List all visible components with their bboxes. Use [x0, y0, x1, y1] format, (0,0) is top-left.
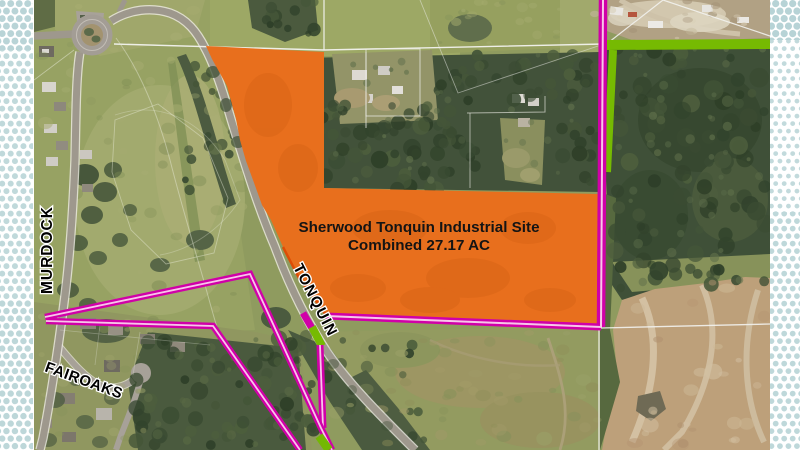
svg-text:Sherwood Tonquin Industrial Si: Sherwood Tonquin Industrial Site: [298, 219, 539, 236]
svg-text:Combined 27.17 AC: Combined 27.17 AC: [348, 237, 490, 254]
svg-text:MURDOCK: MURDOCK: [39, 206, 56, 294]
